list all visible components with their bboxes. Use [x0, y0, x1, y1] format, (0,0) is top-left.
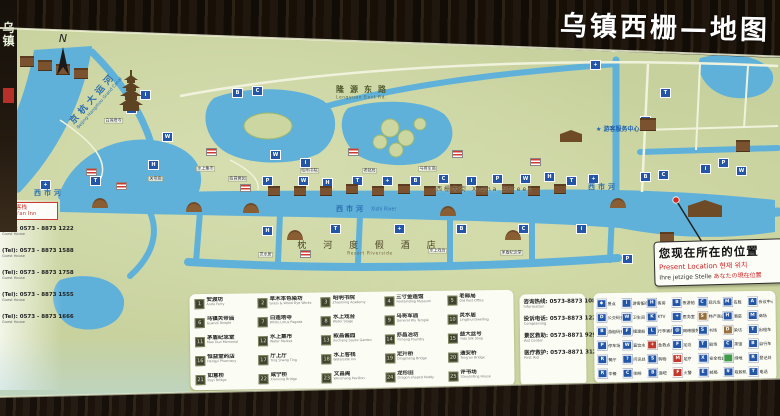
legend-service-item: ¥取款机 — [723, 364, 748, 378]
map-service-icon: H — [148, 160, 159, 170]
map-place-tag: 老邮局 — [362, 168, 377, 173]
legend-service-item: W直饮水 — [622, 338, 647, 352]
service-icon: T — [748, 366, 758, 375]
inn-flag-icon — [206, 148, 217, 156]
temple-icon — [688, 200, 722, 217]
legend-attraction-item: 9乌将军庙General Wu Temple — [383, 313, 446, 333]
map-service-icon: + — [590, 60, 601, 70]
service-label: 特产商店 — [708, 312, 722, 318]
attraction-icon: 25 — [448, 372, 458, 382]
legend-service-item: D公交码头 — [597, 310, 622, 324]
attraction-text: 水上集市Water Market — [270, 334, 310, 347]
map-service-icon: T — [90, 176, 101, 186]
attraction-text: 安渡坊Andu Ferry — [206, 297, 239, 309]
attraction-icon: 2 — [258, 298, 268, 308]
attraction-text: 三寸金莲馆Footbinding Museum — [396, 294, 446, 307]
attraction-name-en: White Lotus Pagoda — [270, 321, 298, 325]
road-en: Longyuan East Rd. — [336, 95, 387, 100]
phone-sublabel: Guest House — [2, 254, 39, 258]
service-icon: B — [597, 327, 607, 336]
service-label: 购物 — [659, 355, 667, 361]
legend-hotline-item: 投诉电话: 0573-8873 1224Complaining — [524, 314, 582, 328]
map-place-tag: 白莲塔寺 — [104, 118, 123, 123]
legend-service-item: +急救点 — [647, 337, 672, 351]
attraction-icon: 10 — [447, 315, 457, 325]
service-label: 邮局 — [709, 368, 717, 374]
attraction-icon: 7 — [258, 317, 268, 327]
service-icon: M — [747, 310, 757, 319]
bridge-icon — [440, 206, 456, 216]
attraction-icon: 11 — [195, 337, 205, 347]
attraction-icon: 23 — [322, 373, 332, 383]
legend-attraction-item: 13叙昌酱园Xuchang Sauce Garden — [320, 333, 383, 353]
building-icon — [424, 186, 436, 195]
attraction-icon: 3 — [321, 297, 331, 307]
building-icon — [320, 186, 332, 195]
service-label: 绿地 — [734, 354, 742, 360]
street-zh: 西栅大街 — [436, 186, 468, 193]
legend-attraction-item: 1安渡坊Andu Ferry — [193, 296, 256, 316]
service-label: 自行车 — [759, 340, 771, 346]
service-label: 登记处 — [759, 354, 771, 360]
attraction-text: 厅上厅Ting Shang Ting — [270, 352, 318, 365]
map-service-icon: P — [262, 176, 273, 186]
map-service-icon: C — [658, 170, 669, 180]
resort-zh: 枕 河 度 假 酒 店 — [297, 241, 442, 251]
map-service-icon: C — [518, 224, 529, 234]
service-icon: M — [673, 354, 683, 363]
service-label: KTV — [658, 314, 666, 319]
legend-service-item: S书场 — [697, 322, 722, 336]
attraction-name-en: Hengyi Pharmacy — [207, 360, 235, 364]
service-icon: A — [747, 296, 757, 305]
river-en: Xishi River — [371, 207, 396, 213]
attraction-name-en: Mao Dun Memorial — [207, 341, 235, 345]
legend-attraction-item: 14亦昌冶坊Yichang Foundry — [383, 332, 446, 352]
legend-service-item: H客房 — [647, 295, 672, 309]
map-service-icon: C — [438, 174, 449, 184]
map-service-icon: B — [410, 176, 421, 186]
service-icon: R — [597, 369, 607, 378]
attraction-text: 草木本色染坊Grass & Wood Dye Works — [270, 295, 320, 308]
service-icon: R — [748, 352, 758, 361]
service-icon: ¥ — [723, 367, 733, 376]
north-arrow-icon — [52, 45, 74, 79]
legend-services-panel: ◆景点i游客服务H客房B夜游船C观光车M名胜A会议中心D公交码头W卫生间KKTV… — [593, 291, 776, 384]
map-service-icon: H — [262, 226, 273, 236]
legend-attraction-item: 4三寸金莲馆Footbinding Museum — [383, 294, 446, 314]
visitor-center-label: ★ 游客服务中心 — [596, 124, 639, 133]
temple-icon — [560, 130, 582, 142]
legend-service-item: R登记处 — [748, 350, 773, 364]
service-label: 出租车 — [759, 326, 771, 332]
map-place-tag: 茅盾纪念堂 — [500, 250, 523, 255]
legend-service-item: ?问讯处 — [622, 352, 647, 366]
service-label: 公交码头 — [608, 314, 622, 320]
bridge-icon — [243, 203, 259, 213]
river-zh: 西市河 — [336, 205, 366, 213]
service-label: 景点 — [607, 300, 615, 306]
attraction-icon: 21 — [195, 375, 205, 385]
service-label: 急救点 — [658, 341, 670, 347]
inn-flag-icon — [86, 168, 97, 176]
xishi-river-label-east: 西市河 — [588, 182, 618, 192]
map-place-tag: 乌将军庙 — [418, 166, 437, 171]
legend-service-item: T出租车 — [748, 322, 773, 336]
legend-service-item: E邮局 — [698, 364, 723, 378]
service-icon: W — [622, 312, 632, 321]
service-icon: S — [697, 311, 707, 320]
map-service-icon: P — [492, 174, 503, 184]
service-label: 酒店 — [733, 312, 741, 318]
building-icon — [20, 56, 34, 66]
service-icon: F — [672, 340, 682, 349]
legend-service-item: M名胜 — [722, 294, 747, 308]
building-icon — [398, 184, 410, 193]
service-icon: S — [697, 325, 707, 334]
map-title: 乌镇西栅—地图 — [560, 4, 771, 47]
attraction-name-en: Yichang Foundry — [397, 338, 424, 342]
attraction-text: 恒益堂药店Hengyi Pharmacy — [207, 353, 257, 366]
legend-service-item: B自行车 — [748, 336, 773, 350]
service-icon — [723, 353, 733, 362]
present-en: Present Location — [659, 262, 717, 272]
attraction-name-en: Wenchang Pavilion — [334, 377, 362, 381]
building-icon — [268, 186, 280, 195]
service-icon: i — [622, 298, 632, 307]
map-service-icon: W — [736, 166, 747, 176]
legend-service-item: H酒店 — [722, 308, 747, 322]
attraction-icon: 22 — [259, 374, 269, 384]
xishi-river-label-center: 西市河 Xishi River — [336, 204, 403, 214]
attraction-icon: 12 — [258, 336, 268, 346]
service-icon: T — [698, 339, 708, 348]
attraction-icon: 1 — [194, 299, 204, 309]
attraction-text: 益大丝号Yida Silk Shop — [460, 331, 502, 344]
attraction-text: 昭明书院Zhaoming Academy — [333, 295, 383, 308]
legend-service-item: R中餐 — [597, 366, 622, 380]
attraction-icon: 18 — [322, 354, 332, 364]
street-en: Xizha Street — [472, 186, 533, 193]
attraction-text: 茅盾纪念堂Mao Dun Memorial — [207, 334, 257, 347]
service-label: 行李寄存 — [658, 327, 672, 333]
attraction-text: 叙昌酱园Xuchang Sauce Garden — [333, 333, 383, 346]
map-service-icon: i — [300, 158, 311, 168]
building-icon — [346, 184, 358, 193]
attraction-name-en: Dragon-shaped Paddy — [397, 376, 425, 380]
attraction-name-en: Xuchang Sauce Garden — [333, 339, 361, 343]
legend-attraction-item: 19定升桥Dingsheng Bridge — [384, 351, 447, 371]
service-icon: + — [672, 312, 682, 321]
phone-entry: (Tel): 0573 - 8873 1758Guest House — [2, 270, 64, 283]
attraction-text: 老邮局Old Post Office — [459, 293, 503, 306]
attraction-icon: 8 — [321, 316, 331, 326]
service-icon: P — [597, 341, 607, 350]
legend-service-item: B夜游船 — [672, 295, 697, 309]
service-label: 停车场 — [608, 342, 620, 348]
legend-attraction-item: 20通安桥Tong'an Bridge — [447, 350, 510, 370]
map-service-icon: T — [330, 224, 341, 234]
service-label: 观光车 — [708, 298, 720, 304]
service-label: 游客服务 — [633, 299, 647, 305]
legend-hotline-item: 景区救助: 0573-8871 9299Aid Center — [524, 331, 582, 345]
service-icon: ? — [622, 354, 632, 363]
legend-service-item: A会议中心 — [747, 294, 772, 308]
attraction-name-en: Yida Silk Shop — [460, 337, 483, 341]
bridge-icon — [610, 198, 626, 208]
service-label: 商场 — [759, 312, 767, 318]
service-icon: W — [622, 340, 632, 349]
service-icon: F — [673, 368, 683, 377]
legend-attractions-panel: 1安渡坊Andu Ferry2草木本色染坊Grass & Wood Dye Wo… — [189, 290, 514, 391]
present-location-callout: 您现在所在的位置 Present Location 현재 위치 Ihre jet… — [653, 238, 780, 286]
compass: N — [50, 32, 76, 83]
attraction-name-en: Footbinding Museum — [396, 300, 424, 304]
photo-bottom-wash — [0, 336, 190, 396]
attraction-name-en: Guandi Temple — [207, 322, 232, 326]
attraction-text: 文昌阁Wenchang Pavilion — [334, 371, 384, 384]
service-label: 酒吧 — [659, 369, 667, 375]
attraction-text: 龙形田Dragon-shaped Paddy — [397, 370, 447, 383]
service-icon: X — [698, 353, 708, 362]
river-zh: 西市河 — [34, 189, 64, 197]
attraction-text: 白莲塔寺White Lotus Pagoda — [270, 314, 320, 327]
attraction-icon: 24 — [385, 372, 395, 382]
attraction-icon: 15 — [448, 334, 458, 344]
map-place-tag: 灵水居 — [258, 252, 273, 257]
service-icon: C — [697, 297, 707, 306]
legend-service-item: C观光车 — [697, 294, 722, 308]
legend-service-item: F摆渡船 — [622, 324, 647, 338]
building-icon — [554, 184, 566, 193]
phone-sublabel: Guest House — [2, 298, 39, 302]
map-service-icon: B — [640, 172, 651, 182]
present-de: Ihre jetzige Stelle — [659, 273, 711, 281]
map-place-tag: 叙昌酱园 — [228, 176, 247, 181]
building-icon — [736, 140, 750, 151]
service-label: 茶馆 — [734, 340, 742, 346]
phone-sublabel: Guest House — [2, 232, 39, 236]
hotline-label-en: Aid Center — [524, 339, 559, 342]
service-label: 会议中心 — [758, 298, 772, 304]
xizha-street-label: 西栅大街 Xizha Street — [436, 184, 532, 193]
attraction-name-en: Zhaoming Academy — [333, 301, 361, 305]
service-label: 问讯处 — [633, 355, 645, 361]
attraction-name-en: Waterside Inn — [334, 358, 357, 362]
legend-hotlines-panel: 咨询热线: 0573-8873 1088Information投诉电话: 057… — [519, 294, 586, 387]
attraction-name-en: Storytelling House — [460, 375, 488, 379]
attraction-icon: 6 — [195, 318, 205, 328]
service-label: 摆渡船 — [633, 327, 645, 333]
service-icon: S — [648, 354, 658, 363]
building-icon — [372, 186, 384, 195]
bridge-icon — [92, 198, 108, 208]
service-icon: @ — [672, 326, 682, 335]
phone-sublabel: Guest House — [2, 320, 39, 324]
service-label: 直饮水 — [633, 341, 645, 347]
service-icon: + — [647, 340, 657, 349]
attraction-text: 亦昌冶坊Yichang Foundry — [396, 332, 446, 345]
service-label: 足疗 — [684, 355, 692, 361]
legend-attraction-item: 2草木本色染坊Grass & Wood Dye Works — [257, 295, 320, 315]
map-place-tag: 水上集市 — [196, 166, 215, 171]
attraction-name-en: Ting Shang Ting — [270, 359, 297, 363]
map-service-icon: + — [394, 224, 405, 234]
present-de-ja: Ihre jetzige Stelle あなたの現在位置 — [659, 269, 779, 281]
map-service-icon: W — [298, 176, 309, 186]
left-sign-seal — [3, 88, 14, 103]
road-zh: 隆源东路 — [336, 85, 392, 94]
attraction-icon: 14 — [385, 334, 395, 344]
map-service-icon: T — [660, 88, 671, 98]
attraction-icon: 16 — [195, 356, 205, 366]
attraction-text: 乌将军庙General Wu Temple — [396, 313, 446, 326]
map-place-tag: 昭明书院 — [300, 168, 319, 173]
legend-attraction-item: 18水上客栈Waterside Inn — [321, 352, 384, 372]
attraction-icon: 4 — [384, 296, 394, 306]
attraction-text: 水上客栈Waterside Inn — [334, 352, 375, 365]
service-label: 安全检查 — [709, 354, 723, 360]
attraction-text: 咸宁桥Xianning Bridge — [271, 371, 319, 384]
phone-entry: (Tel): 0573 - 8873 1555Guest House — [2, 292, 64, 305]
service-label: 网络服务 — [683, 327, 697, 333]
service-icon: K — [647, 312, 657, 321]
map-service-icon: P — [718, 158, 729, 168]
service-icon: E — [698, 367, 708, 376]
inn-flag-icon — [452, 150, 463, 158]
legend-service-item: C咖啡 — [623, 366, 648, 380]
service-icon: B — [648, 368, 658, 377]
service-icon: ◆ — [596, 299, 606, 308]
building-icon — [74, 68, 88, 78]
service-label: 夜游船 — [683, 299, 695, 305]
map-service-icon: T — [566, 176, 577, 186]
legend-attraction-item: 17厅上厅Ting Shang Ting — [257, 352, 320, 372]
legend-attraction-item: 10灵水居Lingshui Dwelling — [446, 312, 509, 332]
attraction-name-en: Ruyi Bridge — [208, 379, 227, 383]
legend-service-item: KKTV — [647, 309, 672, 323]
legend-service-item: B游船码头 — [597, 324, 622, 338]
attraction-text: 评书场Storytelling House — [460, 369, 510, 382]
bridge-icon — [186, 202, 202, 212]
attraction-name-en: Grass & Wood Dye Works — [270, 302, 298, 306]
legend-hotline-item: 医疗救护: 0573-8871 3120First Aid — [524, 348, 582, 362]
legend-service-item: R餐厅 — [597, 352, 622, 366]
attraction-text: 定升桥Dingsheng Bridge — [397, 351, 447, 364]
legend-service-item: i游客服务 — [622, 296, 647, 310]
service-label: 火警 — [684, 369, 692, 375]
legend-attraction-item: 6乌镇关帝庙Guandi Temple — [194, 315, 257, 335]
service-icon: B — [748, 338, 758, 347]
building-icon — [640, 118, 656, 130]
legend-service-item: L行李寄存 — [647, 323, 672, 337]
service-icon: H — [722, 311, 732, 320]
legend-attraction-item: 15益大丝号Yida Silk Shop — [447, 331, 510, 351]
legend-service-item: F足浴 — [672, 337, 697, 351]
service-icon: D — [597, 313, 607, 322]
legend-service-item: S购物 — [647, 351, 672, 365]
hotline-label-en: First Aid — [524, 356, 559, 359]
map-service-icon: i — [700, 164, 711, 174]
map-service-icon: W — [162, 132, 173, 142]
service-label: 名胜 — [733, 298, 741, 304]
service-label: 餐厅 — [608, 356, 616, 362]
service-icon: F — [622, 326, 632, 335]
attraction-text: 如意桥Ruyi Bridge — [207, 373, 242, 385]
service-label: 书场 — [708, 326, 716, 332]
attraction-name-en: Water Stage — [333, 320, 353, 324]
inn-flag-icon — [348, 148, 359, 156]
attraction-icon: 5 — [447, 296, 457, 306]
legend-service-item: B酒吧 — [648, 365, 673, 379]
service-label: 医务室 — [683, 313, 695, 319]
legend-attraction-item: 5老邮局Old Post Office — [446, 293, 509, 313]
attraction-text: 灵水居Lingshui Dwelling — [459, 312, 509, 325]
attraction-name-en: General Wu Temple — [396, 319, 424, 323]
map-service-icon: B — [232, 88, 243, 98]
phone-entry: (Tel): 0573 - 8873 1666Guest House — [2, 314, 64, 327]
attraction-name-en: Andu Ferry — [206, 303, 224, 307]
service-icon: R — [597, 355, 607, 364]
legend-attraction-item: 7白莲塔寺White Lotus Pagoda — [257, 314, 320, 334]
phone-entry: (Tel): 0573 - 8873 1588Guest House — [2, 248, 64, 261]
map-service-icon: W — [270, 150, 281, 160]
attraction-name-en: Water Market — [270, 340, 292, 344]
map-service-icon: W — [520, 174, 531, 184]
inn-flag-icon — [116, 182, 127, 190]
legend-service-item: T剧场 — [698, 336, 723, 350]
attraction-name-en: Xianning Bridge — [271, 378, 297, 382]
inn-flag-icon — [240, 184, 251, 192]
attraction-text: 乌镇关帝庙Guandi Temple — [207, 315, 252, 328]
north-road-label: 隆源东路 Longyuan East Rd. — [336, 84, 409, 102]
service-label: 客房 — [658, 299, 666, 305]
map-service-icon: B — [456, 224, 467, 234]
xishi-river-label-west: 西市河 — [34, 188, 64, 198]
service-label: 染坊 — [734, 326, 742, 332]
legend-service-item: W卫生间 — [622, 310, 647, 324]
legend-service-item: T电话 — [748, 364, 773, 378]
legend-attraction-item: 8水上戏台Water Stage — [320, 314, 383, 334]
service-icon: T — [748, 324, 758, 333]
service-icon: D — [723, 325, 733, 334]
map-service-icon: + — [382, 176, 393, 186]
service-icon: C — [723, 339, 733, 348]
map-service-icon: H — [544, 172, 555, 182]
legend-hotline-item: 咨询热线: 0573-8873 1088Information — [523, 297, 581, 311]
legend-attraction-item: 16恒益堂药店Hengyi Pharmacy — [194, 353, 257, 373]
service-icon: B — [672, 298, 682, 307]
attraction-icon: 19 — [385, 353, 395, 363]
legend-service-item: ◆景点 — [596, 296, 621, 310]
present-zh: 您现在所在的位置 — [659, 242, 779, 261]
service-label: 咖啡 — [634, 370, 642, 376]
hotline-label-en: Complaining — [524, 322, 559, 325]
attraction-text: 水上戏台Water Stage — [333, 314, 370, 327]
attraction-icon: 9 — [384, 315, 394, 325]
attraction-text: 通安桥Tong'an Bridge — [460, 350, 505, 363]
map-place-tag: 关帝庙 — [148, 176, 163, 181]
service-icon: H — [647, 298, 657, 307]
visitor-center-zh: ★ 游客服务中心 — [596, 126, 639, 133]
hotline-label-en: Information — [524, 305, 559, 308]
service-label: 剧场 — [709, 340, 717, 346]
map-service-icon: P — [622, 254, 633, 264]
present-ja: あなたの現在位置 — [714, 272, 762, 280]
legend-service-item: M足疗 — [673, 351, 698, 365]
map-service-icon: C — [252, 86, 263, 96]
service-icon: M — [722, 297, 732, 306]
